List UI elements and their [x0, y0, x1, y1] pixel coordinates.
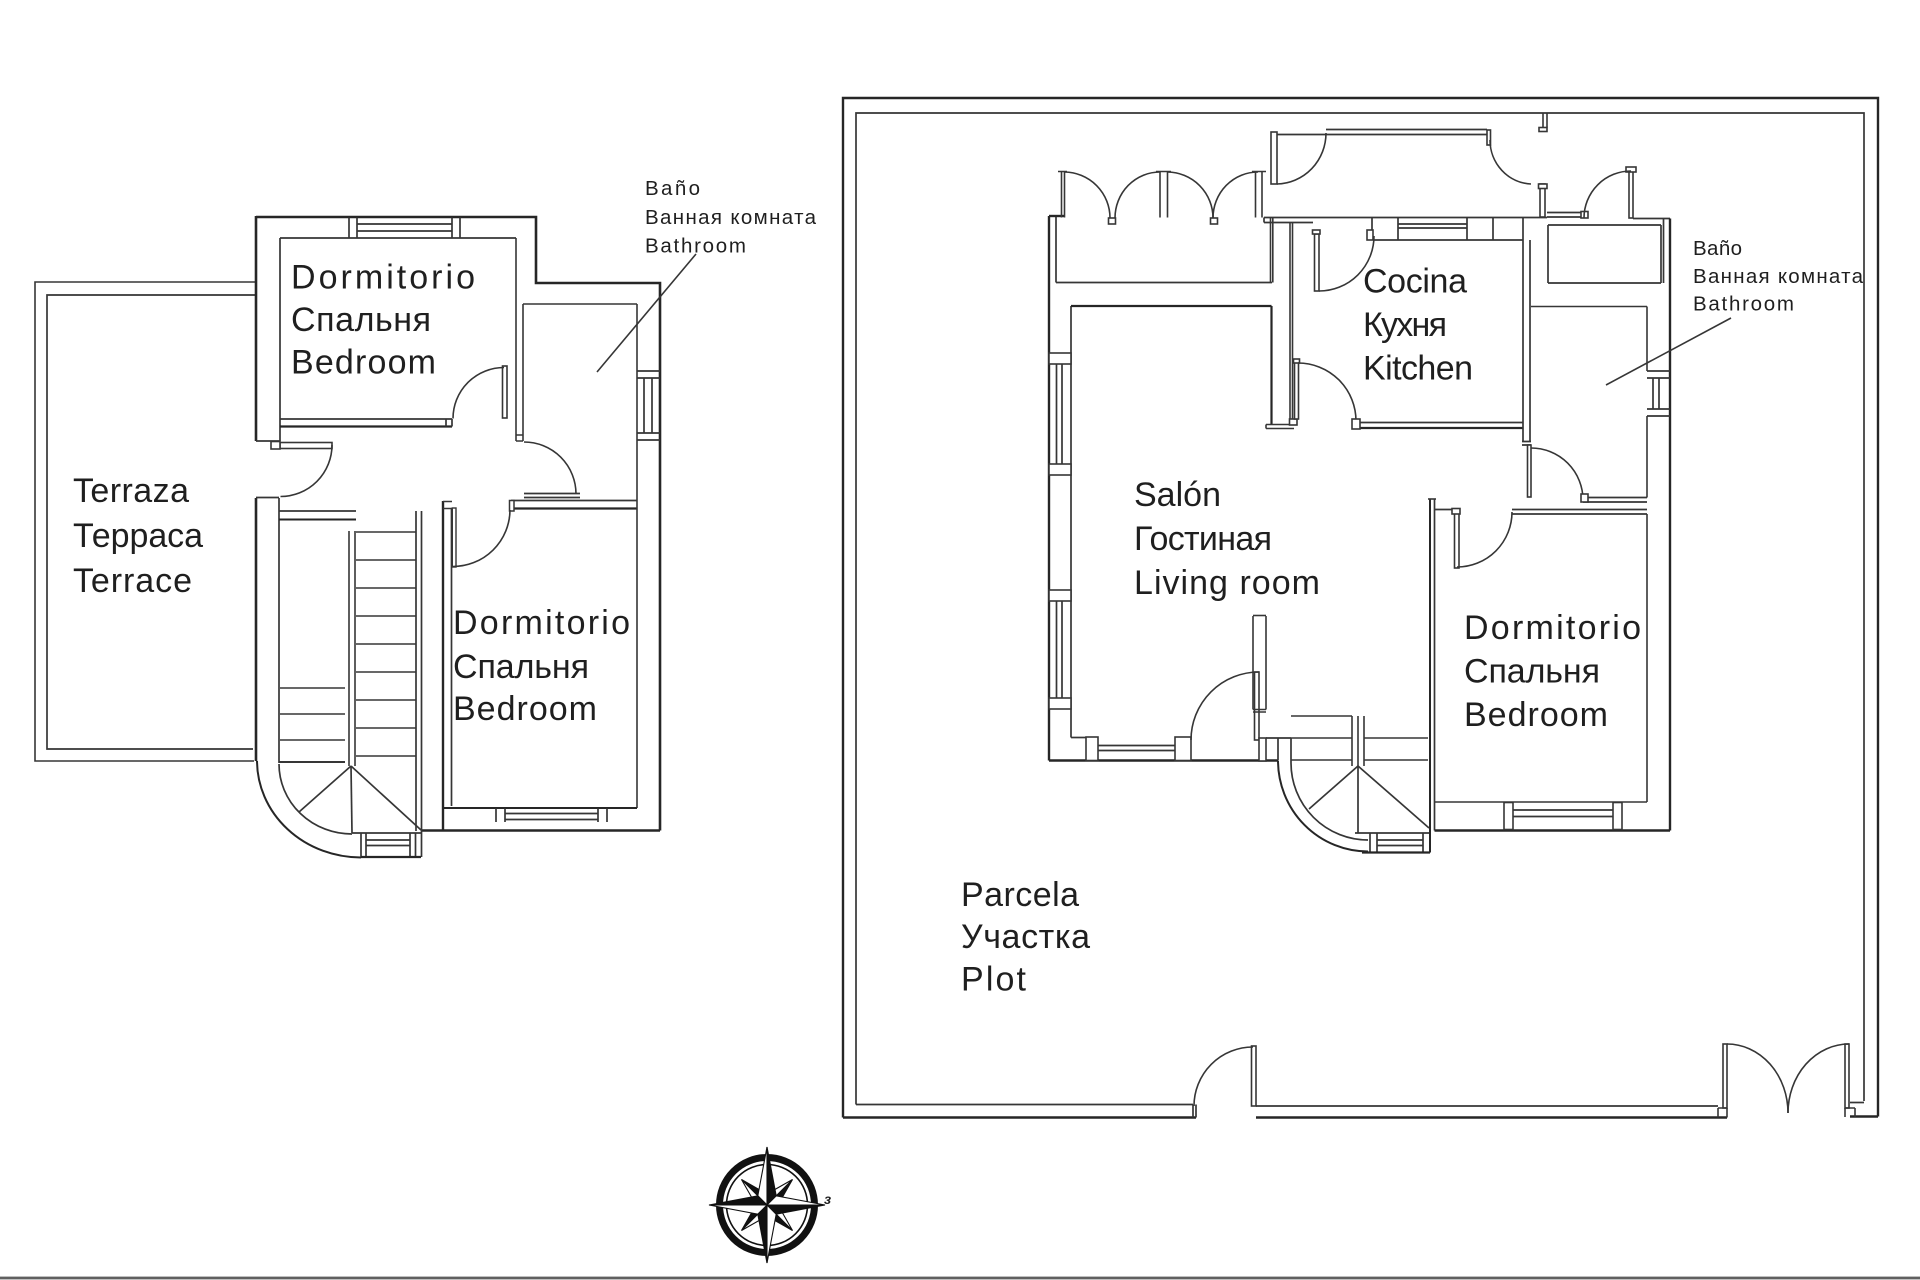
svg-text:Bedroom: Bedroom — [1464, 696, 1608, 734]
svg-text:Терраса: Терраса — [73, 517, 203, 555]
svg-text:Кухня: Кухня — [1363, 306, 1447, 344]
svg-text:Cocina: Cocina — [1363, 263, 1467, 301]
svg-text:з: з — [824, 1191, 831, 1207]
svg-text:Bathroom: Bathroom — [1693, 293, 1794, 316]
svg-text:Bathroom: Bathroom — [645, 235, 746, 258]
svg-text:Terrace: Terrace — [73, 562, 192, 600]
svg-text:Dormitorio: Dormitorio — [453, 604, 630, 642]
svg-text:Спальня: Спальня — [453, 648, 589, 686]
svg-text:Baño: Baño — [1693, 237, 1742, 260]
svg-text:Dormitorio: Dormitorio — [291, 259, 475, 297]
svg-text:Parcela: Parcela — [961, 876, 1079, 914]
svg-text:Ванная комната: Ванная комната — [645, 206, 817, 229]
svg-text:Dormitorio: Dormitorio — [1464, 609, 1641, 647]
svg-text:Living room: Living room — [1134, 564, 1320, 602]
svg-text:Bedroom: Bedroom — [453, 690, 597, 728]
svg-text:Участка: Участка — [961, 918, 1090, 956]
svg-text:Спальня: Спальня — [1464, 653, 1600, 691]
svg-text:Terraza: Terraza — [73, 472, 189, 510]
svg-text:Спальня: Спальня — [291, 301, 431, 339]
svg-text:Salón: Salón — [1134, 476, 1221, 514]
svg-text:Ванная комната: Ванная комната — [1693, 265, 1864, 288]
svg-text:Kitchen: Kitchen — [1363, 350, 1473, 388]
svg-text:Bedroom: Bedroom — [291, 344, 436, 382]
svg-text:Гостиная: Гостиная — [1134, 520, 1272, 558]
